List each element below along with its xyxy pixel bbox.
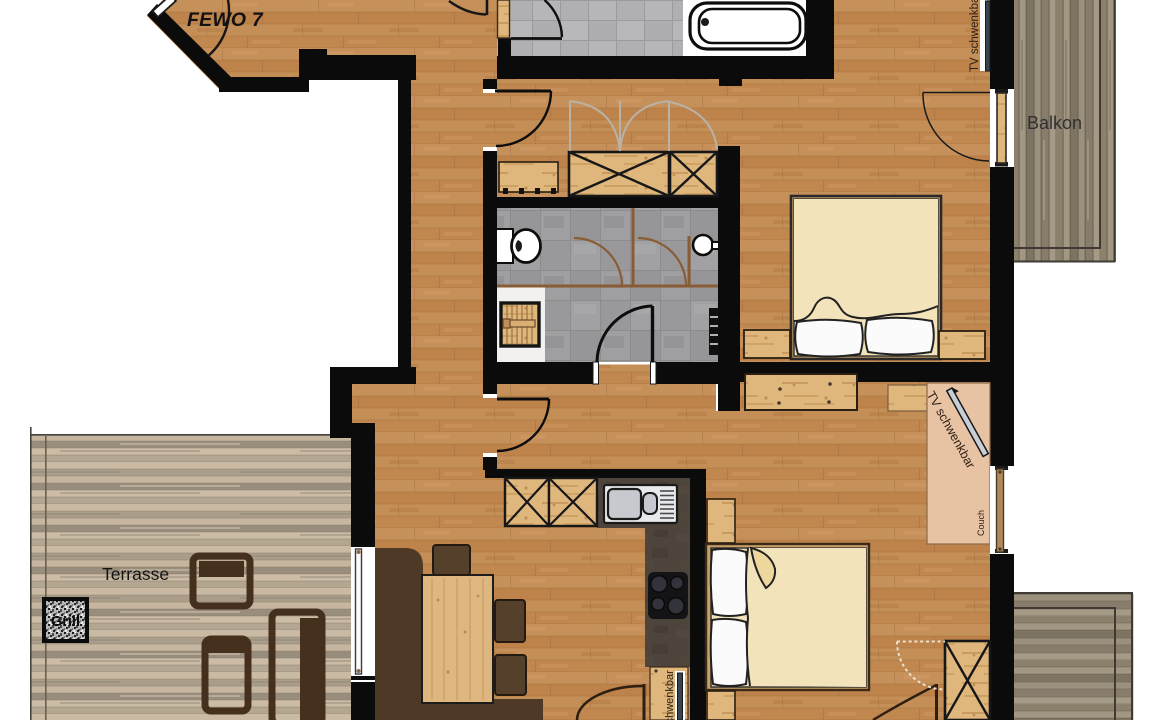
svg-text:FEWO 7: FEWO 7 (187, 9, 264, 31)
svg-text:Balkon: Balkon (1027, 113, 1082, 133)
svg-text:TV schwenkbar: TV schwenkbar (664, 670, 676, 720)
svg-text:Grill: Grill (51, 614, 80, 630)
svg-text:Terrasse: Terrasse (102, 564, 169, 584)
svg-text:Couch: Couch (976, 510, 986, 536)
svg-text:TV schwenkbar: TV schwenkbar (969, 0, 981, 72)
